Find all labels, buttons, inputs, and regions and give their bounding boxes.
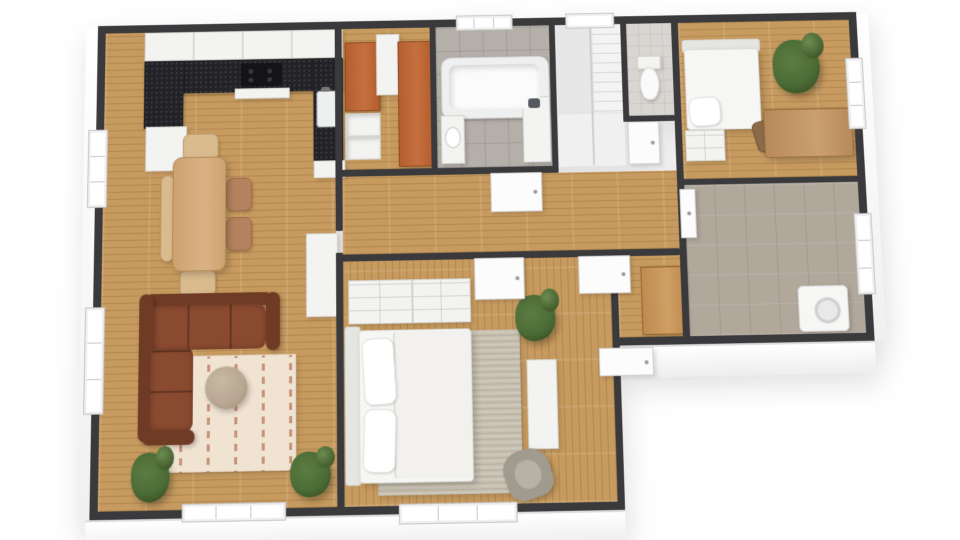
bathroom-window [456, 15, 513, 31]
stairs-window [565, 13, 614, 29]
dresser [348, 279, 413, 324]
dresser [412, 278, 471, 323]
kitchen-countertop-left [144, 61, 184, 129]
living-tall-cabinet [306, 233, 338, 317]
pantry-open-shelf [345, 136, 381, 160]
wc-door [627, 121, 660, 164]
kitchen-faucet [321, 87, 330, 92]
master-bedroom-door [474, 257, 525, 300]
pantry-shelf-unit [376, 34, 400, 96]
chest-of-drawers [685, 130, 726, 162]
hall-door [578, 255, 631, 294]
pillow [361, 337, 397, 406]
desk [763, 108, 854, 158]
sideboard [526, 359, 559, 450]
sofa-seats-left [150, 348, 193, 432]
cooktop [241, 63, 282, 87]
sofa-seats-top [147, 304, 266, 351]
bathtub-faucet [528, 98, 540, 108]
entry-door [599, 347, 654, 376]
pantry-wardrobe-right [397, 41, 433, 167]
kitchen-upper-cabinets [145, 29, 343, 61]
sofa-armrest-bottom [142, 429, 195, 445]
wall-dining-pantry [335, 22, 343, 231]
living-window [83, 307, 105, 415]
pillow [688, 96, 723, 128]
pillow [363, 409, 397, 473]
potted-plant [771, 39, 821, 94]
duvet [393, 330, 473, 479]
floor-plan-stage [0, 0, 960, 540]
dining-chair [226, 217, 252, 251]
utility-door [679, 189, 697, 239]
dining-chair [226, 178, 252, 212]
bathroom-door [490, 172, 543, 212]
potted-plant [515, 294, 556, 341]
master-bedroom-window [399, 501, 518, 524]
dining-table [172, 157, 227, 272]
living-bottom-window [182, 502, 287, 523]
oven-front [235, 88, 290, 100]
kitchen-window [87, 130, 108, 209]
exterior-fascia-bottom-right [620, 341, 877, 378]
sofa-armrest-right [266, 292, 280, 351]
floor-plan [0, 0, 960, 540]
stair-void [555, 25, 594, 114]
bathtub-basin [449, 64, 540, 110]
pantry-open-shelf [345, 113, 381, 137]
